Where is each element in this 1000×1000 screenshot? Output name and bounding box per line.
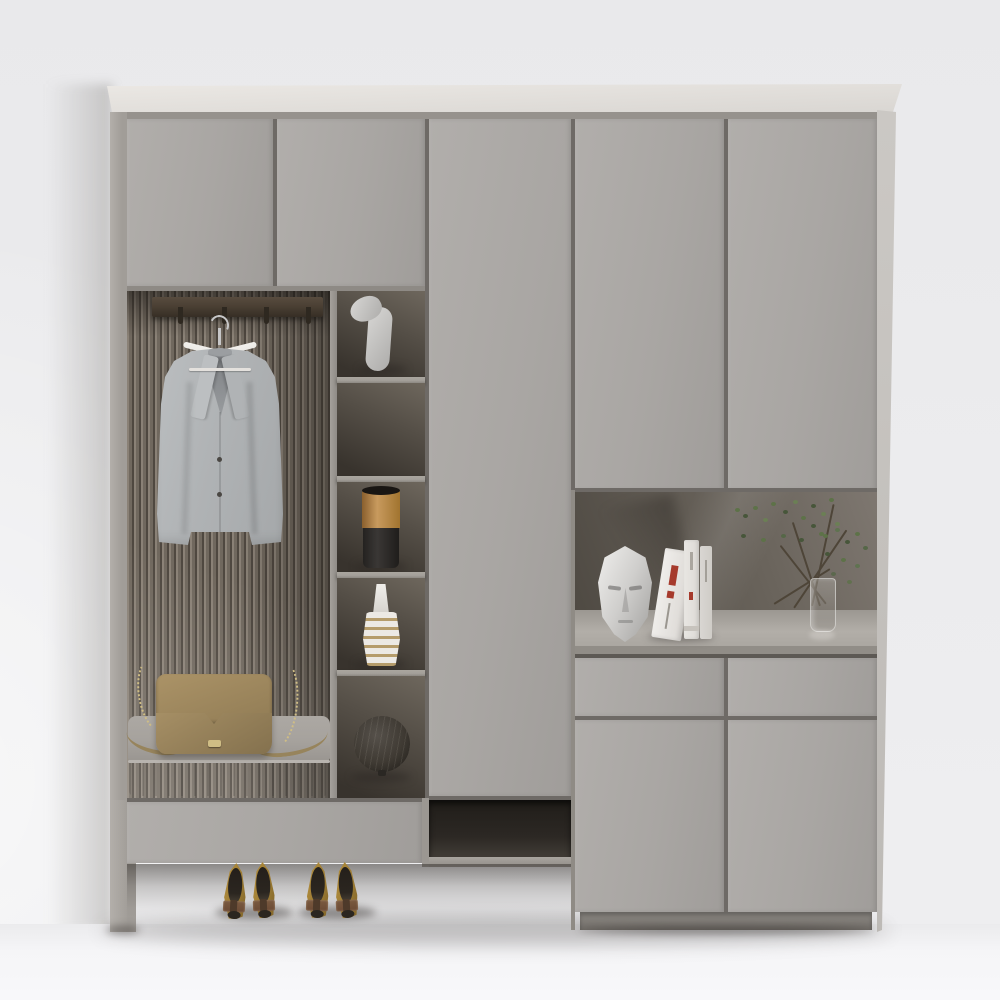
drawer-side-divider <box>422 798 429 867</box>
suit-jacket <box>148 346 292 548</box>
plant-leaves <box>811 524 816 528</box>
vase-mouth <box>362 486 400 495</box>
handbag <box>156 660 276 760</box>
book-spine-text <box>665 603 671 629</box>
upper-door-left-2[interactable] <box>277 119 425 286</box>
shelf-cell-4 <box>337 578 425 670</box>
ribbed-bottle-vase-neck <box>373 584 389 614</box>
sphere-foot <box>378 770 386 776</box>
book-spine-text <box>705 560 707 582</box>
cabinet-right-side-panel <box>877 110 896 932</box>
bottom-drawer-left[interactable] <box>127 802 422 863</box>
wall-shadow <box>48 84 112 930</box>
plant-leaves <box>735 508 740 512</box>
right-drawer-2[interactable] <box>728 658 877 716</box>
cabinet-top-panel <box>104 84 905 113</box>
jacket-sleeve-seam-left <box>181 382 192 534</box>
mask-mouth <box>618 620 633 623</box>
upper-door-right-1[interactable] <box>575 119 724 490</box>
shoe-toe <box>227 911 240 920</box>
mask-eye <box>608 585 621 591</box>
plinth-shadow <box>578 926 874 934</box>
rattan-sphere <box>354 716 410 772</box>
pump-shoe <box>304 862 332 919</box>
bag-clasp <box>208 740 221 747</box>
pump-shoe <box>332 861 361 918</box>
frame-top-rail <box>110 112 877 119</box>
tall-center-door[interactable] <box>429 119 571 796</box>
shelf-cell-2-empty <box>337 383 425 476</box>
shoe-toe <box>311 910 324 918</box>
book-spine-text <box>690 552 693 570</box>
book-spine-band <box>684 626 699 631</box>
right-drawer-1[interactable] <box>575 658 724 716</box>
upper-door-left-1[interactable] <box>127 119 273 286</box>
mask-eye <box>629 585 642 591</box>
shoe-toe <box>258 910 271 918</box>
open-shoe-slot <box>429 800 571 857</box>
mask-nose <box>622 588 629 612</box>
vase-reflection <box>809 630 835 640</box>
rail-hook <box>178 307 183 324</box>
plant-arrangement <box>715 490 875 650</box>
cushion-front <box>129 763 329 796</box>
left-leg-shadow <box>106 926 140 934</box>
upper-door-right-2[interactable] <box>728 119 877 490</box>
glass-vase <box>810 578 836 632</box>
shelf-divider <box>330 291 337 800</box>
vase-black-base <box>363 528 399 568</box>
shelf-cell-5 <box>337 676 425 800</box>
pump-shoe <box>220 862 249 919</box>
book-spine-accent <box>669 565 679 586</box>
shelf-cell-3 <box>337 482 425 572</box>
hanger-crossbar <box>189 368 251 371</box>
scene <box>0 0 1000 1000</box>
lower-door-right-1[interactable] <box>575 720 724 912</box>
ribbed-bottle-vase <box>363 612 400 666</box>
upright-book-1 <box>684 540 699 639</box>
vase-brass-top <box>362 490 400 528</box>
jacket-button <box>217 457 222 462</box>
hanger-hook-stem <box>218 328 221 345</box>
rail-hook <box>264 307 269 324</box>
jacket-sleeve-seam-right <box>246 382 257 534</box>
shelf-cell-1 <box>337 291 425 377</box>
upright-book-2 <box>700 546 712 639</box>
rail-hook <box>306 307 311 324</box>
jacket-placket <box>219 412 221 532</box>
pump-shoe <box>249 862 277 919</box>
book-spine-accent <box>666 591 674 599</box>
lower-door-right-2[interactable] <box>728 720 877 912</box>
jacket-button <box>217 492 222 497</box>
book-spine-figure <box>689 592 693 600</box>
brass-black-vase <box>362 490 400 568</box>
shoe-toe <box>341 910 354 919</box>
